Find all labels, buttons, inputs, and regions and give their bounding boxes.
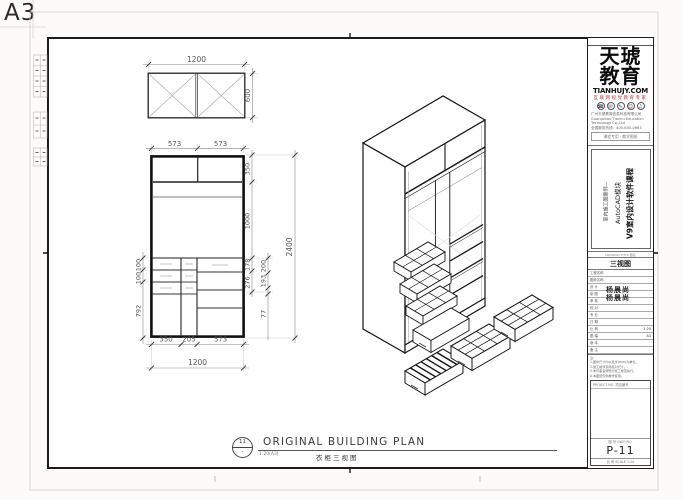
svg-text:100: 100	[135, 272, 143, 284]
table-row: 日 期	[588, 319, 653, 326]
course-title-section: V9室内设计软件课程 AutoCAD模块 室内施工图案例—	[588, 146, 653, 252]
number-box-header: PROJECT NO. 项目编号	[591, 381, 650, 389]
title-block-table: 工程名称 图纸名称 设 计 制 图 审 核 校 对 专 业 日 期 比 例1:2…	[588, 270, 653, 355]
svg-text:573: 573	[168, 140, 181, 148]
svg-text:1200: 1200	[188, 358, 207, 367]
logo-text-line2: 教育	[588, 66, 653, 86]
table-row: 比 例1:20	[588, 326, 653, 333]
svg-text:350: 350	[244, 163, 252, 175]
svg-text:1000: 1000	[244, 213, 252, 230]
sheet-name: 三视图	[588, 258, 653, 270]
mail-icon: ✉	[607, 102, 615, 110]
table-row: 版 本	[588, 340, 653, 347]
course-module: AutoCAD模块	[612, 153, 622, 253]
drawing-number: P-11	[591, 444, 650, 458]
table-row: 图 幅A3	[588, 333, 653, 340]
svg-text:276: 276	[244, 276, 252, 288]
contact-icon-row: ☎ ✉ ✎ ☺ ♫	[588, 102, 653, 110]
drafter-name-stamp: 杨晨尚	[606, 293, 630, 303]
svg-text:77: 77	[260, 310, 268, 318]
svg-text:573: 573	[214, 336, 227, 344]
footer-scale: 1:20(A3)	[259, 452, 279, 457]
drawing-sheet: A3	[0, 0, 683, 500]
svg-text:2400: 2400	[285, 237, 294, 256]
table-row: 备 注	[588, 347, 653, 354]
edit-icon: ✎	[617, 102, 625, 110]
logo-text-line1: 天琥	[588, 46, 653, 66]
logo-domain: TIANHUJY.COM	[588, 87, 653, 95]
table-row: 图纸名称	[588, 277, 653, 284]
cad-linework: 1200 600	[0, 0, 683, 500]
qq-icon: ☺	[627, 102, 635, 110]
svg-text:200: 200	[260, 260, 268, 272]
svg-text:100: 100	[135, 259, 143, 271]
notes-block: 注: 1.图中尺寸均以毫米(mm)为单位。 2.施工前须现场核对尺寸。 3.未尽…	[588, 355, 653, 381]
detail-marker-sub: -	[233, 448, 252, 456]
svg-text:178: 178	[244, 259, 252, 271]
drawing-scale: 比 例 SCALE 1:20	[591, 458, 650, 465]
sheet-frame	[0, 0, 658, 490]
svg-text:1200: 1200	[187, 55, 206, 64]
svg-text:205: 205	[182, 336, 195, 344]
detail-marker: 11 -	[232, 437, 253, 458]
margin-revision-strip	[34, 55, 48, 166]
svg-text:792: 792	[135, 305, 143, 317]
title-block-top-strip	[588, 38, 653, 46]
title-block: 天琥 教育 TIANHUJY.COM 互联网视觉教育专家 ☎ ✉ ✎ ☺ ♫ 广…	[587, 38, 653, 468]
table-row: 校 对	[588, 305, 653, 312]
course-title-box: V9室内设计软件课程 AutoCAD模块 室内施工图案例—	[591, 149, 651, 249]
logo-tagline: 互联网视觉教育专家	[588, 95, 653, 101]
svg-text:193: 193	[260, 275, 268, 287]
company-name-cn: 广州天琥教育信息科技有限公司	[591, 112, 650, 117]
title-underline	[258, 450, 557, 451]
wechat-icon: ♫	[637, 102, 645, 110]
table-row: 专 业	[588, 312, 653, 319]
table-row: 工程名称	[588, 270, 653, 277]
logo-section: 天琥 教育 TIANHUJY.COM 互联网视觉教育专家 ☎ ✉ ✎ ☺ ♫ 广…	[588, 46, 653, 146]
course-title: V9室内设计软件课程	[624, 153, 635, 252]
phone-icon: ☎	[597, 102, 605, 110]
company-hotline: 全国服务热线：400-600-0663	[591, 126, 650, 131]
drawing-title-text: ORIGINAL BUILDING PLAN	[263, 436, 425, 448]
company-name-en: Guangzhou Tianhu Education Technology Co…	[591, 117, 650, 126]
course-case: 室内施工图案例—	[602, 151, 609, 251]
svg-text:600: 600	[244, 89, 252, 102]
svg-text:573: 573	[214, 140, 227, 148]
detail-marker-number: 11	[233, 438, 252, 448]
drawing-number-box: PROJECT NO. 项目编号 图 号 DWG NO. P-11 比 例 SC…	[590, 380, 651, 466]
stamp-box: 课程专用 · 教学图纸	[591, 132, 650, 141]
svg-text:350: 350	[159, 336, 172, 344]
footer-subtitle: 衣柜三视图	[316, 452, 359, 462]
